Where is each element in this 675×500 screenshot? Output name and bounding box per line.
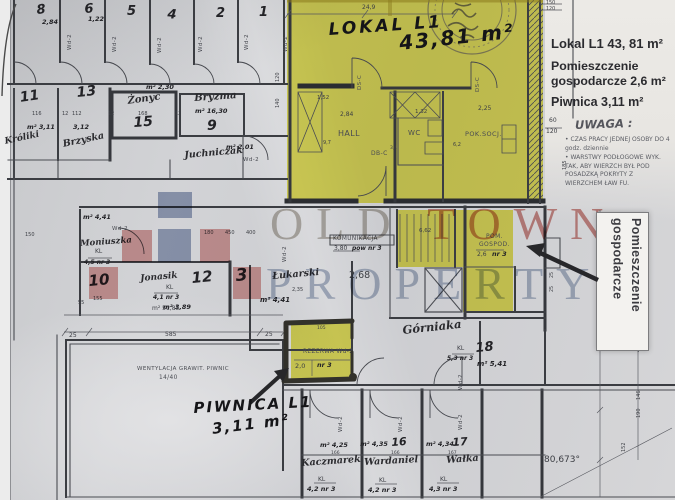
plan-label: 12 — [62, 112, 68, 117]
scanned-floorplan: 82,8461,225421Wd-2Wd-2Wd-2Wd-2Wd-2Wd-212… — [0, 0, 675, 500]
plan-label: 24,9 — [362, 5, 375, 11]
plan-label: KL — [457, 346, 464, 352]
plan-label: 120 — [546, 8, 555, 13]
rotated-label-line1: Pomieszczenie — [626, 218, 645, 345]
plan-label: m² 3,11 — [27, 124, 55, 131]
plan-label: m² 4,41 — [260, 297, 290, 304]
plan-label: Jonasik — [140, 272, 178, 284]
plan-label: nr 3 — [492, 251, 507, 258]
plan-label: WENTYLACJA GRAWIT. PIWNIC — [137, 367, 229, 373]
plan-label: 4,1 nr 3 — [153, 295, 179, 301]
uwaga-note-2: •WARSTWY PODŁOGOWE WYK. TAK, ABY WIERZCH… — [565, 154, 672, 189]
plan-label: 3,4 — [390, 147, 397, 152]
plan-label: 5 — [127, 5, 136, 18]
piwnica-line: Piwnica 3,11 m² — [551, 95, 643, 109]
plan-label: Wd-2 — [283, 246, 289, 262]
plan-label: KL — [379, 478, 386, 484]
plan-label: 60 — [549, 118, 557, 124]
plan-label: Wałka — [446, 454, 479, 466]
plan-label: KL — [166, 285, 173, 291]
arrow-to-pom-gospodarcze — [526, 243, 598, 280]
plan-label: 12 — [175, 112, 181, 117]
plan-label: 2 — [216, 7, 225, 20]
bullet-icon: • — [565, 136, 569, 143]
plan-label: Żonyc — [127, 92, 161, 107]
plan-label: 190 — [637, 408, 642, 418]
plan-label: GOSPOD. — [479, 242, 510, 248]
plan-label: Moniuszka — [80, 236, 132, 248]
plan-label: Wd-2 — [113, 36, 119, 52]
plan-label: 2,0 — [295, 363, 305, 370]
plan-label: Wd-2 — [112, 227, 128, 233]
uwaga-note-1: •CZAS PRACY JEDNEJ OSOBY DO 4 godz. dzie… — [565, 136, 670, 153]
plan-label: m² 51,85 — [152, 306, 179, 312]
plan-label: 400 — [246, 231, 256, 236]
plan-label: 2,84 — [340, 112, 353, 118]
plan-label: 1,52 — [317, 96, 329, 102]
plan-label: 6,62 — [419, 229, 431, 235]
plan-label: 25 — [69, 333, 77, 339]
plan-label: 120 — [276, 72, 281, 82]
plan-label: DS-C — [358, 75, 364, 90]
plan-label: Kaczmarek — [301, 455, 361, 469]
plan-label: KL — [440, 477, 447, 483]
plan-label: m² 4,41 — [83, 214, 111, 221]
logo-square — [158, 229, 191, 262]
plan-label: 18 — [475, 340, 494, 355]
plan-label: m² 2,30 — [146, 84, 174, 91]
highlight-region — [463, 267, 513, 312]
plan-label: 25 — [265, 332, 273, 338]
plan-label: 13 — [76, 84, 97, 100]
plan-label: 25 — [551, 286, 556, 292]
uwaga-note-1-text: CZAS PRACY JEDNEJ OSOBY DO 4 godz. dzien… — [565, 136, 670, 152]
pomieszczenie-line: Pomieszczenie — [551, 59, 638, 73]
plan-label: 2,68 — [349, 271, 370, 281]
plan-label: 152 — [622, 442, 627, 452]
plan-label: 2,35 — [292, 288, 303, 293]
bullet-icon: • — [565, 154, 569, 161]
plan-label: 150 — [25, 233, 35, 238]
plan-label: 2,25 — [478, 106, 491, 112]
uwaga-heading: UWAGA : — [575, 116, 633, 132]
plan-label: 2,6 — [477, 252, 487, 258]
plan-label: Łukarski — [272, 268, 320, 282]
plan-label: m² 16,30 — [195, 108, 227, 115]
plan-label: DB-C — [371, 151, 388, 157]
plan-label: 585 — [165, 332, 176, 338]
plan-label: 10 — [88, 272, 110, 289]
plan-label: Bryzma — [194, 91, 237, 104]
plan-label: 8 — [36, 3, 46, 17]
plan-label: 140 — [276, 98, 281, 108]
plan-label: 3,12 — [73, 124, 89, 131]
plan-label: Wd-2 — [68, 34, 74, 50]
plan-label: 9 — [207, 119, 217, 133]
plan-label: 6 — [84, 2, 94, 16]
rotated-label-line2: gospodarcze — [608, 218, 627, 345]
plan-label: 55 — [78, 301, 84, 306]
plan-label: 155 — [93, 297, 103, 302]
plan-label: 3,80 — [334, 246, 347, 252]
plan-label: 4 — [167, 8, 177, 22]
plan-label: 1,22 — [88, 16, 104, 23]
plan-label: 6,2 — [453, 143, 461, 148]
plan-label: 116 — [32, 112, 42, 117]
plan-label: 180 — [204, 231, 214, 236]
plan-label: 4,5 nr 3 — [84, 260, 110, 266]
plan-label: REZERWA Wd-2 — [303, 350, 353, 356]
logo-square — [158, 192, 192, 218]
plan-label: Wd-2 — [243, 158, 259, 164]
plan-label: KOMUNIKACJA — [333, 237, 378, 243]
plan-label: Wd-2 — [158, 37, 164, 53]
plan-label: pow nr 3 — [352, 246, 382, 252]
plan-label: 12 — [191, 269, 213, 286]
plan-label: 1 — [259, 6, 268, 19]
plan-label: 12 — [108, 112, 114, 117]
plan-label: DS-C — [476, 77, 482, 92]
plan-label: Wd-2 — [284, 36, 290, 52]
plan-label: 120 — [546, 129, 557, 135]
gospodarcze-line: gospodarcze 2,6 m² — [551, 74, 666, 88]
plan-label: Wd-2 — [339, 416, 345, 432]
plan-label: 168 — [138, 112, 148, 117]
plan-label: POK.SOCJ. — [465, 131, 502, 138]
plan-label: WC — [408, 130, 421, 137]
plan-label: 4,3 nr 3 — [429, 486, 457, 493]
scan-edge — [0, 0, 11, 500]
plan-label: 17 — [452, 436, 468, 448]
plan-label: Wd-2 — [399, 416, 405, 432]
plan-label: 14/40 — [159, 376, 178, 382]
plan-label: 80,673° — [544, 456, 580, 465]
plan-label: 450 — [225, 231, 235, 236]
plan-label: 5,3 nr 3 — [447, 356, 473, 362]
plan-label: Wd-2 — [459, 414, 465, 430]
plan-label: 16 — [391, 436, 407, 448]
plan-label: 3 — [235, 267, 248, 285]
plan-label: 1,32 — [415, 110, 427, 116]
plan-label: KL — [318, 477, 325, 483]
plan-label: 25 — [551, 272, 556, 278]
uwaga-note-2-text: WARSTWY PODŁOGOWE WYK. TAK, ABY WIERZCH … — [565, 154, 661, 187]
plan-label: POM. — [486, 234, 503, 240]
plan-label: m² 4,34 — [426, 441, 454, 448]
plan-label: m² 5,41 — [477, 361, 507, 368]
plan-label: Wd-2 — [199, 36, 205, 52]
plan-label: 11 — [19, 88, 40, 105]
plan-label: m² 4,25 — [320, 442, 348, 449]
lokal-summary-title: Lokal L1 43, 81 m² — [551, 36, 663, 51]
plan-label: nr 3 — [317, 362, 332, 369]
piwnica-l1-marker-note: PIWNICA L1 — [193, 393, 313, 417]
plan-label: 146 — [637, 390, 642, 400]
plan-label: Wardaniel — [364, 455, 418, 467]
plan-label: m² 4,35 — [360, 441, 388, 448]
plan-label: m² 2,01 — [226, 144, 254, 151]
plan-label: 9,7 — [323, 141, 331, 146]
plan-label: 4,2 nr 3 — [368, 487, 396, 494]
plan-label: Wd-2 — [459, 374, 465, 390]
plan-label: 4,2 nr 3 — [307, 486, 335, 493]
plan-label: Brzyska — [62, 131, 105, 149]
plan-label: 112 — [72, 112, 82, 117]
pomieszczenie-gospodarcze-label: Pomieszczenie gospodarcze — [596, 212, 649, 351]
plan-label: 2,84 — [42, 19, 58, 26]
plan-label: Górniaka — [402, 319, 462, 337]
plan-label: HALL — [338, 130, 360, 138]
plan-label: 105 — [317, 327, 326, 332]
plan-label: KL — [95, 249, 102, 255]
plan-label: Wd-2 — [245, 34, 251, 50]
